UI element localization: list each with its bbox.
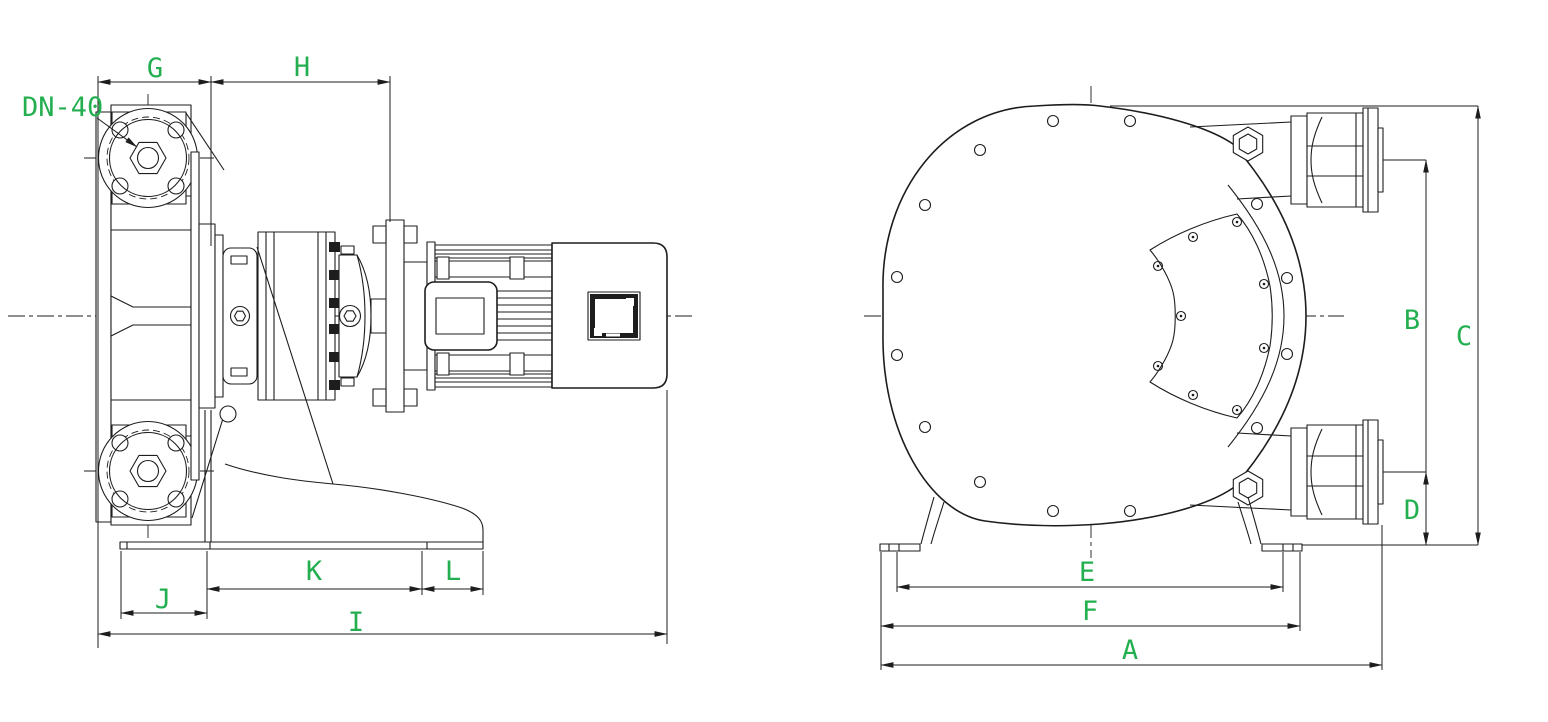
baseplate	[120, 542, 483, 549]
side-view	[8, 94, 692, 549]
shaft-spacer	[371, 299, 386, 333]
front-view	[864, 86, 1383, 558]
dim-label-b: B	[1404, 305, 1420, 336]
dim-label-e: E	[1079, 557, 1095, 588]
dim-label-f: F	[1082, 596, 1098, 627]
dim-label-a: A	[1122, 635, 1138, 666]
suction-flange	[99, 109, 198, 208]
dim-label-c: C	[1456, 321, 1472, 352]
pump-technical-drawing: DN-40 G H J K L I B C D E F A	[0, 0, 1548, 722]
motor	[404, 242, 667, 390]
bearing-housing	[223, 248, 257, 384]
terminal-box	[588, 292, 640, 340]
dim-label-i: I	[348, 607, 364, 638]
dim-label-k: K	[306, 556, 323, 587]
discharge-flange	[99, 422, 198, 521]
pump-dimension-drawing-sheet: DN-40 G H J K L I B C D E F A	[0, 0, 1548, 722]
dim-label-j: J	[155, 584, 171, 615]
dim-label-d: D	[1404, 495, 1420, 526]
dim-label-l: L	[445, 556, 461, 587]
dim-label-g: G	[147, 53, 163, 84]
port-size-label: DN-40	[22, 92, 103, 123]
pedestal	[205, 410, 483, 542]
top-port-connector	[1291, 108, 1383, 212]
coupling	[258, 232, 371, 400]
bottom-port-connector	[1291, 420, 1383, 524]
dim-label-h: H	[294, 52, 310, 83]
